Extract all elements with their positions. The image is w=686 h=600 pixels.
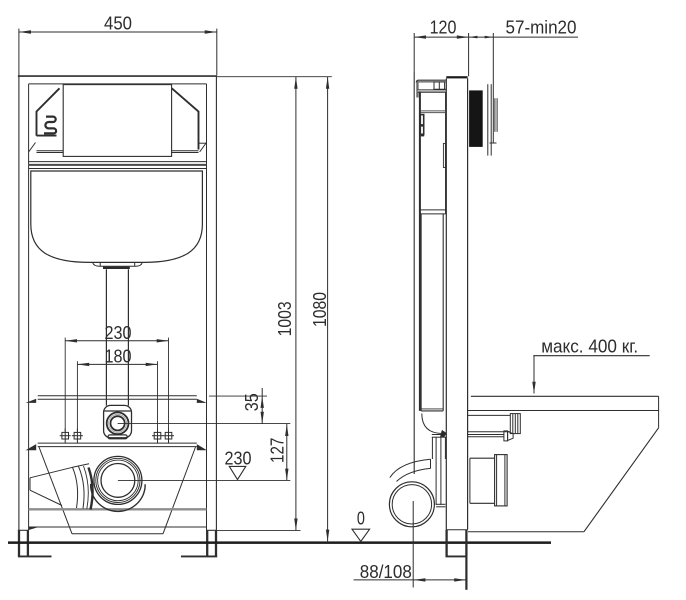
svg-text:макс. 400 кг.: макс. 400 кг. <box>541 337 638 357</box>
svg-text:1003: 1003 <box>275 301 295 336</box>
svg-text:127: 127 <box>268 438 288 463</box>
svg-text:120: 120 <box>430 17 457 37</box>
svg-text:1080: 1080 <box>310 292 330 327</box>
svg-text:57-min20: 57-min20 <box>506 17 577 37</box>
svg-text:230: 230 <box>105 323 132 343</box>
svg-text:88/108: 88/108 <box>360 562 412 582</box>
svg-text:450: 450 <box>104 14 132 34</box>
svg-text:180: 180 <box>105 346 132 366</box>
svg-text:230: 230 <box>225 448 252 468</box>
svg-text:35: 35 <box>242 393 262 411</box>
svg-text:0: 0 <box>357 509 365 529</box>
